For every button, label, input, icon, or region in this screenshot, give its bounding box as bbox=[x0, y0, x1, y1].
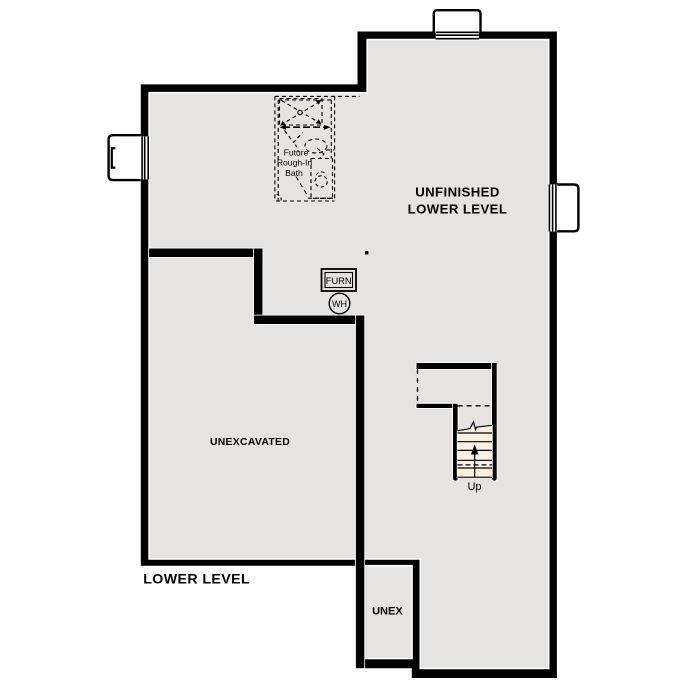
svg-text:FURN: FURN bbox=[326, 276, 352, 286]
svg-text:LOWER LEVEL: LOWER LEVEL bbox=[408, 201, 508, 216]
svg-text:Up: Up bbox=[467, 481, 481, 493]
svg-text:Future: Future bbox=[284, 147, 309, 157]
svg-text:LOWER LEVEL: LOWER LEVEL bbox=[143, 571, 250, 587]
svg-text:WH: WH bbox=[332, 299, 347, 309]
svg-text:Rough-In: Rough-In bbox=[277, 158, 313, 168]
svg-text:Bath: Bath bbox=[285, 168, 303, 178]
svg-text:UNFINISHED: UNFINISHED bbox=[415, 185, 500, 200]
svg-text:UNEX: UNEX bbox=[372, 606, 403, 618]
svg-text:UNEXCAVATED: UNEXCAVATED bbox=[210, 437, 290, 448]
